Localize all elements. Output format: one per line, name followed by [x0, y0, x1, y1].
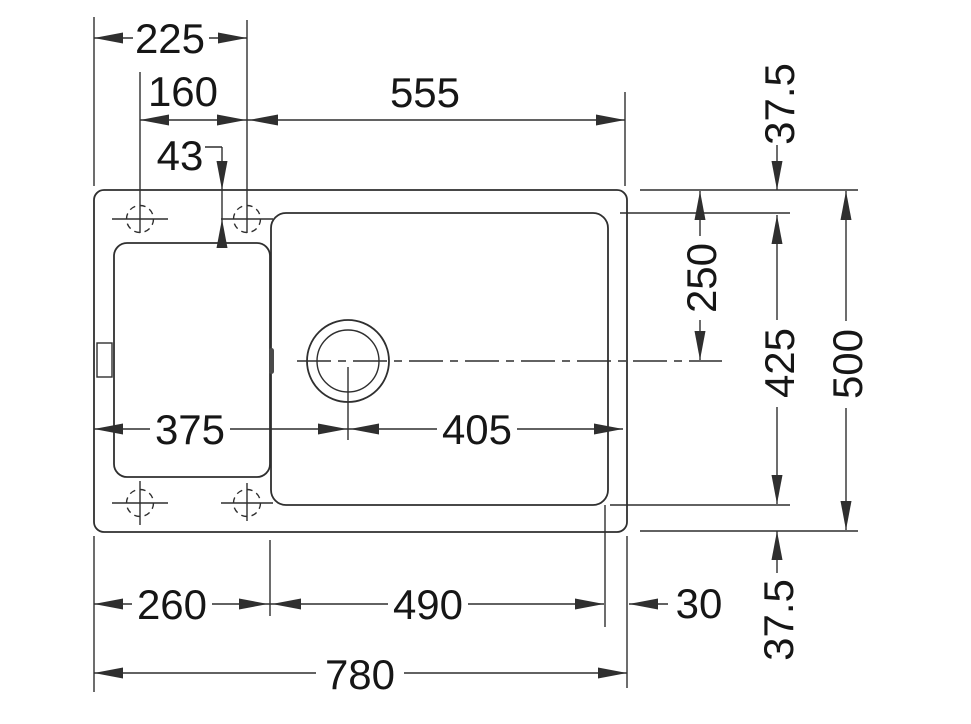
dim-label-260: 260: [137, 581, 207, 628]
dim-label-500: 500: [824, 329, 871, 399]
dim-label-375: 375: [155, 406, 225, 453]
dim-label-225: 225: [135, 15, 205, 62]
dim-label-490: 490: [393, 581, 463, 628]
dim-label-37_5-bottom: 37.5: [755, 579, 802, 661]
dimension-arrowheads: [94, 33, 852, 679]
dim-label-30: 30: [676, 580, 723, 627]
bowl-edge-mark: [269, 348, 274, 374]
sink-dimension-drawing: 225 160 43 555 375 405 260 490 30 780 37…: [0, 0, 971, 724]
dim-label-37_5-top: 37.5: [756, 63, 803, 145]
overflow-slot: [97, 343, 112, 377]
bowl-outline: [271, 213, 608, 505]
tap-hole-crosshairs: [112, 219, 273, 525]
dim-label-250: 250: [678, 243, 725, 313]
dim-label-405: 405: [442, 406, 512, 453]
dim-label-43: 43: [157, 132, 204, 179]
dim-label-555: 555: [390, 69, 460, 116]
dim-label-425: 425: [756, 328, 803, 398]
sink-dimension-drawing-page: 225 160 43 555 375 405 260 490 30 780 37…: [0, 0, 971, 724]
dim-label-780: 780: [325, 651, 395, 698]
dim-label-160: 160: [148, 68, 218, 115]
